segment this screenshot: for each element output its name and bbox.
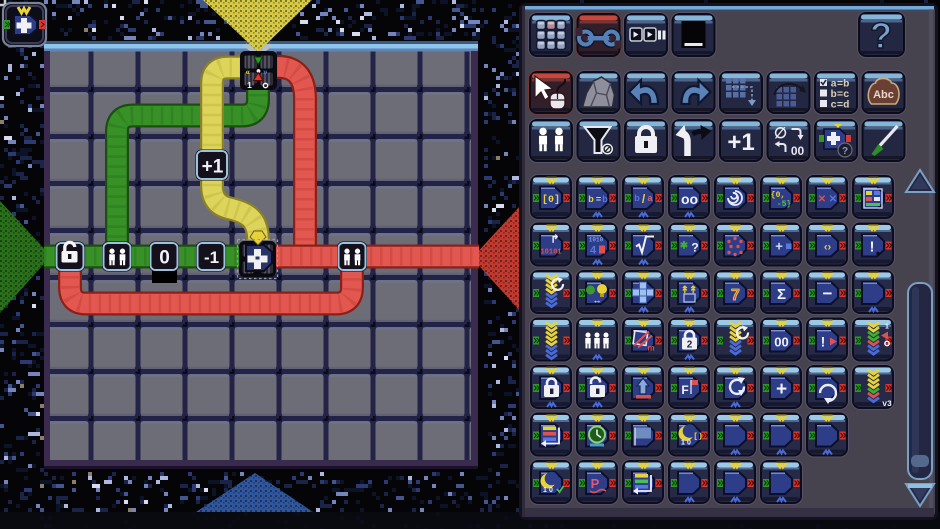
- svg-text:00: 00: [774, 335, 788, 350]
- svg-text:7: 7: [731, 287, 740, 304]
- svg-text:b: b: [588, 194, 594, 204]
- svg-text:+1: +1: [727, 129, 754, 156]
- svg-text:{0,: {0,: [771, 191, 785, 200]
- svg-text:Abc: Abc: [873, 89, 894, 101]
- svg-text:1010: 1010: [589, 237, 604, 244]
- svg-text:0: 0: [159, 248, 170, 269]
- svg-text:‹›: ‹›: [824, 242, 832, 254]
- svg-text:b: b: [634, 193, 640, 203]
- svg-text:↱: ↱: [550, 234, 559, 246]
- svg-text:10101: 10101: [540, 249, 561, 257]
- svg-text:0: 0: [549, 487, 553, 494]
- svg-text:oo: oo: [681, 191, 698, 207]
- svg-text:F: F: [681, 383, 688, 397]
- svg-text:[): [): [693, 433, 703, 442]
- svg-text:Σ: Σ: [777, 286, 786, 303]
- svg-text:b: b: [602, 194, 608, 204]
- svg-text:!: !: [821, 334, 826, 350]
- svg-text:1: 1: [543, 487, 547, 494]
- svg-text:∅: ∅: [774, 125, 787, 142]
- svg-text:0: 0: [687, 440, 691, 447]
- svg-text:4: 4: [590, 245, 597, 257]
- svg-text:m: m: [647, 344, 654, 353]
- svg-text:?: ?: [691, 241, 698, 255]
- svg-text:✕: ✕: [818, 194, 826, 205]
- svg-text:2: 2: [687, 340, 693, 351]
- svg-text:P: P: [591, 476, 600, 491]
- svg-text:c=d: c=d: [831, 100, 850, 112]
- svg-text:✕: ✕: [829, 194, 837, 205]
- svg-text:«: «: [246, 68, 251, 77]
- svg-text:+: +: [775, 239, 783, 254]
- svg-text:!: !: [870, 239, 875, 256]
- svg-text:−: −: [823, 284, 833, 303]
- svg-text:-1: -1: [204, 248, 219, 267]
- svg-text:+1: +1: [202, 157, 224, 178]
- svg-text:?: ?: [842, 146, 848, 157]
- svg-text:?: ?: [870, 15, 892, 56]
- svg-text:+: +: [776, 379, 787, 400]
- svg-text:1: 1: [885, 324, 889, 331]
- svg-text:↔: ↔: [593, 295, 602, 305]
- svg-text:[0]: [0]: [542, 194, 560, 206]
- svg-text:v3: v3: [882, 400, 892, 409]
- svg-text:-5}: -5}: [777, 200, 792, 209]
- svg-text:=: =: [596, 194, 601, 204]
- svg-text:00: 00: [791, 144, 805, 158]
- svg-text:»: »: [263, 68, 268, 77]
- svg-text:✱: ✱: [680, 241, 689, 252]
- svg-text:1: 1: [247, 80, 252, 90]
- svg-text:1: 1: [681, 440, 685, 447]
